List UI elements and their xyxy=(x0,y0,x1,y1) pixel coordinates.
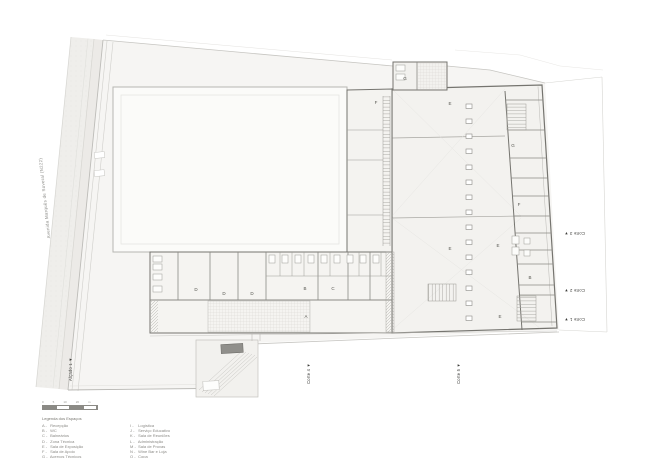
hatched-wall-left xyxy=(150,301,158,332)
section-marker-corte-2: Corte 2 ▼ xyxy=(564,288,585,293)
north-annex xyxy=(393,62,447,90)
scale-tick: 20 xyxy=(76,400,79,404)
roof-plan-square xyxy=(113,87,347,252)
stairs-southeast xyxy=(517,296,536,321)
room-label: G xyxy=(403,76,407,81)
hatched-wall-right xyxy=(386,252,394,332)
kiosk-volume xyxy=(221,343,243,353)
section-marker-corte-3: Corte 3 ▼ xyxy=(564,231,585,236)
column-grid xyxy=(466,104,472,321)
room-label: E xyxy=(448,246,451,251)
room-label: E xyxy=(448,101,451,106)
scale-bar-ticks: 0 5 10 20 m xyxy=(42,400,292,404)
site-plan-drawing: F E G G F E E B E D D D B C A Corte 3 ▼ … xyxy=(0,0,650,458)
room-label: F xyxy=(375,100,378,105)
scale-unit: m xyxy=(88,400,91,404)
section-marker-corte-4: Corte 4 ▼ xyxy=(306,363,311,384)
legend-block: 0 5 10 20 m Legenda dos Espaços A - Rece… xyxy=(42,400,292,458)
section-marker-corte-5: Corte 5 ▼ xyxy=(456,363,461,384)
legend-title: Legenda dos Espaços xyxy=(42,416,292,421)
scale-tick: 5 xyxy=(53,400,55,404)
scale-tick: 0 xyxy=(42,400,44,404)
scale-tick: 10 xyxy=(63,400,66,404)
scale-bar: 0 5 10 20 m xyxy=(42,400,292,410)
room-label: B xyxy=(528,275,531,280)
room-label: B xyxy=(303,286,306,291)
legend-column-left: A - Recepção B - WC C - Balneários D - Z… xyxy=(42,424,120,458)
entrance-deck xyxy=(208,301,310,332)
floor-plan-page: F E G G F E E B E D D D B C A Corte 3 ▼ … xyxy=(0,0,650,458)
room-label: F xyxy=(518,202,521,207)
rooms-band xyxy=(150,252,394,333)
room-label: G xyxy=(511,143,515,148)
legend-column-right: I - Logística J - Serviço Educativo K - … xyxy=(130,424,170,458)
room-label: A xyxy=(304,314,307,319)
external-stair-structure xyxy=(196,334,260,397)
room-label: E xyxy=(498,314,501,319)
room-label: E xyxy=(496,243,499,248)
elevation-marker-alcado-1: Alçado 1 ▼ xyxy=(68,357,73,381)
stairs-hall-interior xyxy=(428,284,456,301)
section-marker-corte-1: Corte 1 ▼ xyxy=(564,317,585,322)
stairs-northeast xyxy=(507,104,526,130)
scale-bar-segments xyxy=(42,405,98,410)
